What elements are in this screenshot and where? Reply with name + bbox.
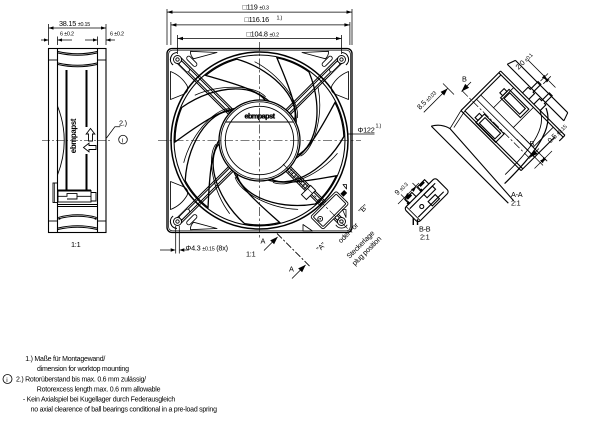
svg-text:Rotorexcess length max. 0.6 mm: Rotorexcess length max. 0.6 mm allowable [37, 387, 161, 394]
svg-text:6 ±0.2: 6 ±0.2 [110, 32, 124, 38]
svg-text:□116.16: □116.16 [245, 15, 270, 24]
svg-text:no axial clearence of ball bea: no axial clearence of ball bearings cond… [31, 407, 217, 414]
svg-text:1:1: 1:1 [71, 240, 81, 249]
svg-text:i: i [122, 138, 123, 145]
svg-text:2:1: 2:1 [511, 199, 521, 208]
svg-text:1.) Maße für Montagewand/: 1.) Maße für Montagewand/ [25, 356, 105, 363]
svg-text:6 ±0.2: 6 ±0.2 [60, 32, 74, 38]
svg-text:1:1: 1:1 [246, 250, 256, 259]
svg-text:A: A [289, 265, 294, 274]
svg-text:B: B [530, 139, 535, 148]
svg-text:i: i [6, 377, 7, 384]
svg-text:2.) Rotorüberstand bis max. 0.: 2.) Rotorüberstand bis max. 0.6 mm zuläs… [16, 377, 146, 384]
svg-text:ebmpapst: ebmpapst [69, 118, 78, 153]
svg-text:1.): 1.) [277, 16, 283, 22]
svg-text:A: A [261, 237, 266, 246]
svg-text:ebmpapst: ebmpapst [245, 112, 276, 121]
svg-text:Φ122: Φ122 [358, 126, 375, 135]
svg-text:B: B [462, 75, 467, 84]
svg-text:2:1: 2:1 [420, 233, 430, 242]
svg-text:dimension for worktop mounting: dimension for worktop mounting [37, 366, 129, 373]
svg-text:1.): 1.) [376, 124, 382, 130]
svg-text:- Kein Axialspiel bei Kugellag: - Kein Axialspiel bei Kugellager durch F… [23, 397, 175, 404]
svg-text:2.): 2.) [119, 119, 127, 128]
